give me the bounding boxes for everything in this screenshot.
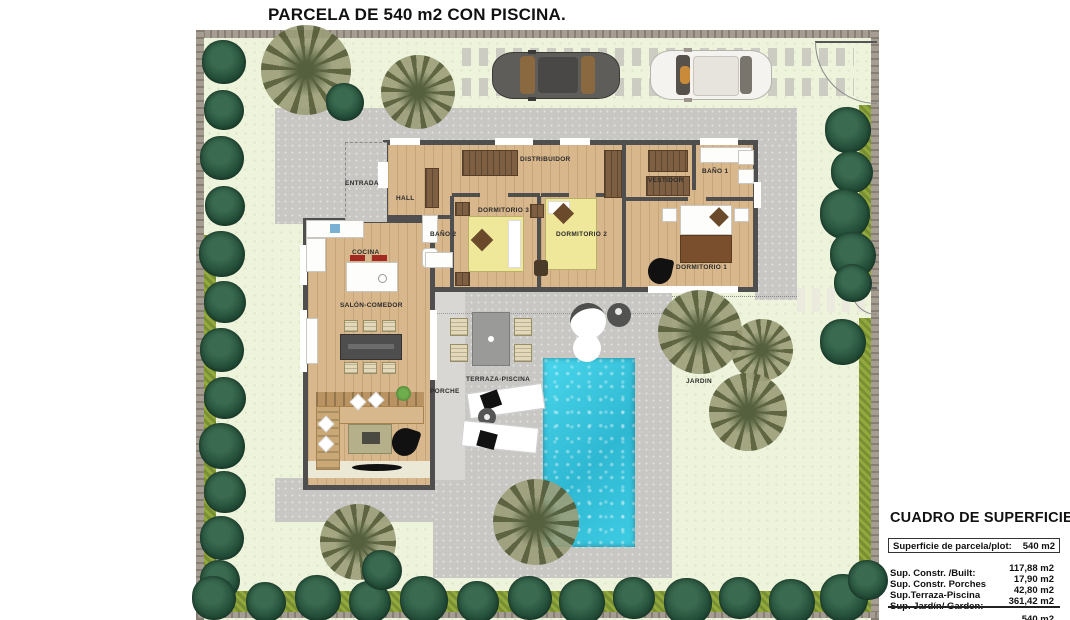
- summary-plot-row: Superficie de parcela/plot: 540 m2: [888, 538, 1060, 553]
- car-white: [650, 50, 772, 100]
- palm-tree: [658, 290, 742, 374]
- stool: [534, 260, 548, 276]
- nightstand: [455, 202, 470, 216]
- room-label-bano-2: BAÑO 2: [430, 232, 456, 239]
- car-mirror: [528, 97, 536, 101]
- dining-table-detail: [348, 344, 394, 349]
- dining-chair: [344, 320, 358, 332]
- window: [390, 138, 420, 145]
- pillow: [508, 220, 521, 268]
- car-rear-glass: [740, 56, 752, 94]
- tree: [719, 577, 761, 619]
- tree: [820, 189, 870, 239]
- side-table: [607, 303, 631, 327]
- tree: [204, 377, 246, 419]
- room-label-dormitorio-2: DORMITORIO 2: [556, 232, 607, 239]
- egg-chair-footrest: [573, 334, 601, 362]
- bathtub: [425, 252, 453, 268]
- palm-tree: [709, 373, 787, 451]
- palm-tree: [493, 479, 579, 565]
- toilet: [738, 169, 754, 184]
- wall-bano2-dorm3: [450, 196, 454, 287]
- coffee-table: [362, 432, 380, 444]
- palm-tree: [731, 319, 793, 381]
- tree: [192, 576, 236, 620]
- car-roof: [538, 57, 578, 93]
- dining-chair: [382, 320, 396, 332]
- side-table-detail: [484, 414, 490, 420]
- tree: [769, 579, 815, 620]
- room-label-jardin: JARDIN: [686, 379, 712, 386]
- room-label-hall: HALL: [396, 196, 415, 203]
- side-path-paving: [755, 142, 797, 300]
- room-label-salon-comedor: SALÓN-COMEDOR: [340, 303, 403, 310]
- kitchen-sink: [330, 224, 340, 233]
- room-label-cocina: COCINA: [352, 250, 379, 257]
- dining-chair: [363, 320, 377, 332]
- blanket: [680, 235, 732, 263]
- car-dark: [492, 52, 620, 99]
- tree: [295, 575, 341, 620]
- tree: [664, 578, 712, 620]
- wall-distribuidor-a: [452, 193, 480, 197]
- dining-chair: [363, 362, 377, 374]
- hall-closet: [425, 168, 439, 208]
- kitchen-island: [346, 262, 398, 292]
- room-label-dormitorio-1: DORMITORIO 1: [676, 265, 727, 272]
- tree: [202, 40, 246, 84]
- sliding-door: [430, 310, 437, 380]
- tree: [246, 582, 286, 620]
- nightstand: [662, 208, 677, 222]
- summary-divider: [888, 606, 1060, 608]
- plot-label: Superficie de parcela/plot:: [893, 541, 1012, 552]
- side-table-detail: [615, 308, 622, 315]
- row-value: 42,80 m2: [1014, 585, 1054, 596]
- patio-chair: [514, 344, 532, 362]
- patio-table-detail: [488, 336, 494, 342]
- boundary-wall-right: [871, 30, 879, 620]
- wardrobe: [648, 150, 688, 172]
- window: [700, 138, 738, 145]
- hedge-right-bottom: [859, 318, 871, 593]
- room-label-terraza-piscina: TERRAZA-PISCINA: [466, 377, 530, 384]
- tree: [204, 90, 244, 130]
- tree: [199, 423, 245, 469]
- sideboard: [306, 318, 318, 364]
- tv: [352, 464, 402, 471]
- patio-chair: [514, 318, 532, 336]
- tree: [204, 281, 246, 323]
- wardrobe: [604, 150, 622, 198]
- tree: [400, 576, 448, 620]
- sink: [422, 215, 438, 243]
- tree: [204, 471, 246, 513]
- page-title: PARCELA DE 540 m2 CON PISCINA.: [268, 5, 566, 25]
- wall-vestidor-dorm1-b: [706, 197, 758, 201]
- tree: [831, 151, 873, 193]
- tree: [834, 264, 872, 302]
- wardrobe: [462, 150, 518, 176]
- palm-tree: [381, 55, 455, 129]
- nightstand: [734, 208, 749, 222]
- summary-table: CUADRO DE SUPERFICIES Superficie de parc…: [886, 508, 1066, 620]
- wall-hall-bano2: [387, 215, 452, 219]
- nightstand: [530, 204, 544, 218]
- room-label-entrada: ENTRADA: [345, 181, 379, 188]
- tree: [559, 579, 605, 620]
- car-mirror: [684, 48, 692, 52]
- tree: [848, 560, 888, 600]
- tree: [508, 576, 552, 620]
- tree: [326, 83, 364, 121]
- wall-distribuidor-b: [508, 193, 540, 197]
- tree: [200, 136, 244, 180]
- floor-plan-canvas: PARCELA DE 540 m2 CON PISCINA.: [0, 0, 1070, 620]
- summary-title: CUADRO DE SUPERFICIES: [890, 510, 1070, 526]
- wall-distribuidor-c: [541, 193, 569, 197]
- window: [754, 182, 761, 208]
- tree: [199, 231, 245, 277]
- summary-row: Sup. Constr. /Built: 117,88 m2: [890, 563, 1058, 574]
- window: [560, 138, 590, 145]
- tree: [205, 186, 245, 226]
- wall-dorm2-dorm1: [622, 145, 626, 287]
- sink: [738, 150, 754, 165]
- summary-row: Sup. Constr. Porches 17,90 m2: [890, 574, 1058, 585]
- dining-chair: [382, 362, 396, 374]
- summary-total-row: 540 m2: [890, 614, 1058, 620]
- room-label-bano-1: BAÑO 1: [702, 169, 728, 176]
- tree: [200, 516, 244, 560]
- room-label-dormitorio-3: DORMITORIO 3: [478, 208, 529, 215]
- nightstand: [455, 272, 470, 286]
- car-interior: [680, 66, 690, 84]
- tree: [613, 577, 655, 619]
- dining-chair: [344, 362, 358, 374]
- front-door: [378, 162, 388, 188]
- row-value: 117,88 m2: [1009, 563, 1054, 574]
- plot-value: 540 m2: [1023, 541, 1055, 552]
- car-mirror: [528, 50, 536, 54]
- car-windshield: [520, 56, 535, 94]
- room-label-distribuidor: DISTRIBUIDOR: [520, 157, 571, 164]
- summary-row: Sup.Terraza-Piscina 42,80 m2: [890, 585, 1058, 596]
- window: [495, 138, 533, 145]
- room-label-vestidor: VESTIDOR: [648, 178, 684, 185]
- tree: [825, 107, 871, 153]
- total-value: 540 m2: [1022, 614, 1054, 620]
- room-label-porche: PORCHE: [430, 389, 460, 396]
- patio-chair: [450, 318, 468, 336]
- wall-vestidor-dorm1-a: [626, 197, 688, 201]
- tree: [200, 328, 244, 372]
- kitchen-counter: [306, 238, 326, 272]
- patio-chair: [450, 344, 468, 362]
- tree: [457, 581, 499, 620]
- row-value: 17,90 m2: [1014, 574, 1054, 585]
- faucet: [378, 274, 387, 283]
- wall-vestidor-bano1: [692, 145, 696, 190]
- car-rear-glass: [581, 56, 595, 94]
- car-roof: [693, 56, 739, 96]
- tree: [820, 319, 866, 365]
- plant: [396, 386, 411, 401]
- tree: [362, 550, 402, 590]
- car-mirror: [684, 98, 692, 102]
